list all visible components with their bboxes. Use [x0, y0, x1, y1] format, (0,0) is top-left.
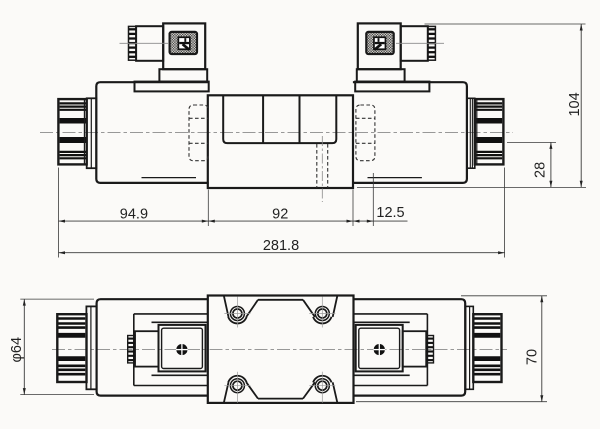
svg-text:12.5: 12.5 — [376, 205, 404, 221]
svg-text:92: 92 — [272, 207, 288, 223]
svg-text:104: 104 — [567, 92, 583, 116]
svg-text:94.9: 94.9 — [120, 207, 148, 223]
svg-text:281.8: 281.8 — [263, 238, 299, 254]
svg-text:70: 70 — [525, 349, 541, 365]
svg-text:φ64: φ64 — [9, 337, 25, 363]
svg-text:28: 28 — [533, 162, 549, 178]
